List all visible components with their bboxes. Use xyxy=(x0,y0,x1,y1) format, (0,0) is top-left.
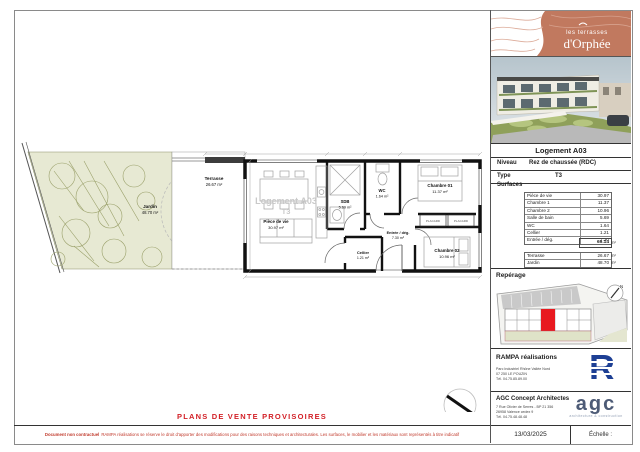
room-cellier-area: 1.21 m² xyxy=(357,256,370,260)
agc-logo-subtext: architecture & construction xyxy=(565,414,627,418)
terrace-zone: Terrasse 26.67 m² xyxy=(172,152,245,269)
surfaces-heading: Surfaces xyxy=(497,182,522,188)
rampa-title: RAMPA réalisations xyxy=(496,354,557,361)
reperage-panel: Repérage N xyxy=(491,268,631,349)
disclaimer-lead: Document non contractuel xyxy=(45,432,99,437)
agc-address-3: Tél. 04.75.48.48.48 xyxy=(496,415,527,420)
agc-title: AGC Concept Architectes xyxy=(496,396,569,402)
jardin-label: Jardin xyxy=(143,204,157,209)
surface-label: Entrée / dég. xyxy=(525,237,581,243)
agc-logo-text: agc xyxy=(565,394,627,414)
building-render-photo xyxy=(491,56,631,144)
surface-value: 10.96 xyxy=(581,208,611,214)
north-compass-icon: N xyxy=(444,389,477,412)
surface-total: 69.14 xyxy=(579,238,612,248)
surface-value: 1.21 xyxy=(581,230,611,236)
agc-block: AGC Concept Architectes 7 Rue Olivier de… xyxy=(491,391,631,426)
site-gardens xyxy=(505,331,591,341)
exterior-surfaces-table: Terrasse26.67 Jardin48.70 xyxy=(524,252,612,268)
niveau-label: Niveau xyxy=(497,157,517,170)
table-row: Salle de bain5.69 xyxy=(525,215,611,222)
niveau-row: Niveau Rez de chaussée (RDC) xyxy=(491,157,631,171)
surface-label: Chambre 1 xyxy=(525,200,581,206)
room-wc-label: WC xyxy=(379,188,386,193)
mini-north-letter: N xyxy=(620,284,623,289)
surface-value: 5.69 xyxy=(581,215,611,221)
room-entree-area: 7.30 m² xyxy=(392,236,405,240)
surfaces-table: Pièce de vie30.97 Chambre 111.37 Chambre… xyxy=(524,192,612,245)
table-row: Terrasse26.67 xyxy=(525,253,611,260)
reperage-title: Repérage xyxy=(496,272,526,279)
disclaimer-strip: Document non contractuel RAMPA réalisati… xyxy=(14,425,490,443)
niveau-value: Rez de chaussée (RDC) xyxy=(529,157,596,170)
surface-label: Pièce de vie xyxy=(525,193,581,199)
jardin-unit: m² xyxy=(611,260,616,265)
table-row: Chambre 210.96 xyxy=(525,208,611,215)
table-row: Cellier1.21 xyxy=(525,230,611,237)
floor-plan-area: Jardin 48.70 m² Terrasse 26.67 m² xyxy=(14,11,490,412)
render-car xyxy=(607,115,629,126)
unit-title: Logement A03 xyxy=(491,144,631,158)
table-row: Pièce de vie30.97 xyxy=(525,193,611,200)
surface-value: 11.37 xyxy=(581,200,611,206)
surface-value: 48.70 xyxy=(581,260,611,266)
surface-label: Salle de bain xyxy=(525,215,581,221)
surface-value: 1.64 xyxy=(581,223,611,229)
room-ch1-label: Chambre 01 xyxy=(427,183,453,188)
placard-label-1: PLACARD xyxy=(426,219,441,223)
title-block-bottom-row: 13/03/2025 Échelle : xyxy=(491,425,631,444)
surface-label: Cellier xyxy=(525,230,581,236)
disclaimer-text: RAMPA réalisations se réserve le droit d… xyxy=(101,432,459,437)
scale-cell: Échelle : xyxy=(570,426,631,444)
rampa-block: RAMPA réalisations Parc Industriel Rhône… xyxy=(491,348,631,392)
unit-info-panel: Logement A03 Niveau Rez de chaussée (RDC… xyxy=(491,143,631,269)
table-row: Chambre 111.37 xyxy=(525,200,611,207)
rampa-address-3: Tél. 04.75.85.89.00 xyxy=(496,377,527,382)
total-unit: m² xyxy=(611,240,616,245)
jardin-area: 48.70 m² xyxy=(142,210,159,215)
room-ch2-area: 10.96 m² xyxy=(439,254,455,259)
surface-label: Terrasse xyxy=(525,253,581,259)
room-sdb-area: 5.69 m² xyxy=(339,206,353,210)
surface-value: 30.97 xyxy=(581,193,611,199)
terrasse-label: Terrasse xyxy=(205,176,224,181)
rampa-logo: R xyxy=(589,353,623,389)
room-ch1-area: 11.37 m² xyxy=(432,189,448,194)
room-wc-area: 1.64 m² xyxy=(376,195,390,199)
room-living-area: 30.97 m² xyxy=(268,225,284,230)
brand-banner: les terrasses d'Orphée xyxy=(491,11,631,56)
agc-logo: agc architecture & construction xyxy=(565,394,627,418)
type-value: T3 xyxy=(555,170,562,183)
highlighted-unit xyxy=(541,309,555,331)
table-row: WC1.64 xyxy=(525,223,611,230)
unit-watermark-title: Logement A03 xyxy=(255,196,317,206)
unit-watermark-type: T3 xyxy=(282,207,291,216)
room-entree-label: Entrée / dég. xyxy=(387,231,410,235)
provisional-plans-title: PLANS DE VENTE PROVISOIRES xyxy=(14,412,490,421)
date-cell: 13/03/2025 xyxy=(491,426,571,444)
surface-label: Chambre 2 xyxy=(525,208,581,214)
terrasse-area: 26.67 m² xyxy=(206,182,223,187)
surface-label: Jardin xyxy=(525,260,581,266)
brand-line2: d'Orphée xyxy=(563,36,610,51)
mini-compass-icon: N xyxy=(607,284,623,301)
surface-value: 26.67 xyxy=(581,253,611,259)
room-ch2-label: Chambre 02 xyxy=(434,248,460,253)
plan-sheet: Jardin 48.70 m² Terrasse 26.67 m² xyxy=(0,0,640,452)
room-living-label: Pièce de vie xyxy=(263,219,289,224)
surface-label: WC xyxy=(525,223,581,229)
placard-label-2: PLACARD xyxy=(454,219,469,223)
terrasse-unit: m² xyxy=(611,253,616,258)
table-row: Jardin48.70 xyxy=(525,260,611,266)
apartment-shell: PLACARD PLACARD xyxy=(203,152,484,279)
room-cellier-label: Cellier xyxy=(357,250,370,255)
room-sdb-label: SDB xyxy=(341,199,350,204)
